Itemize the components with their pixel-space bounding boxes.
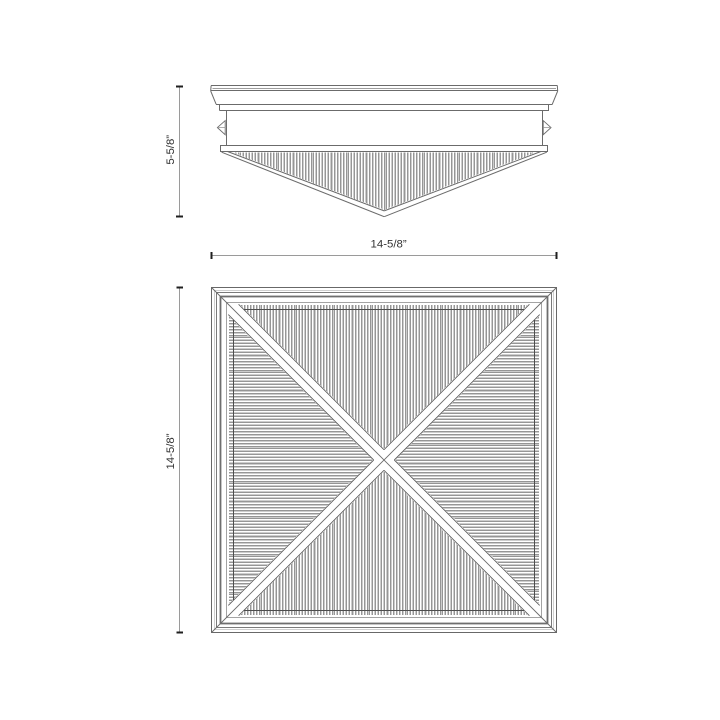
svg-text:5-5/8”: 5-5/8” [165,135,177,165]
svg-text:14-5/8”: 14-5/8” [165,433,177,469]
svg-text:14-5/8”: 14-5/8” [371,239,407,251]
